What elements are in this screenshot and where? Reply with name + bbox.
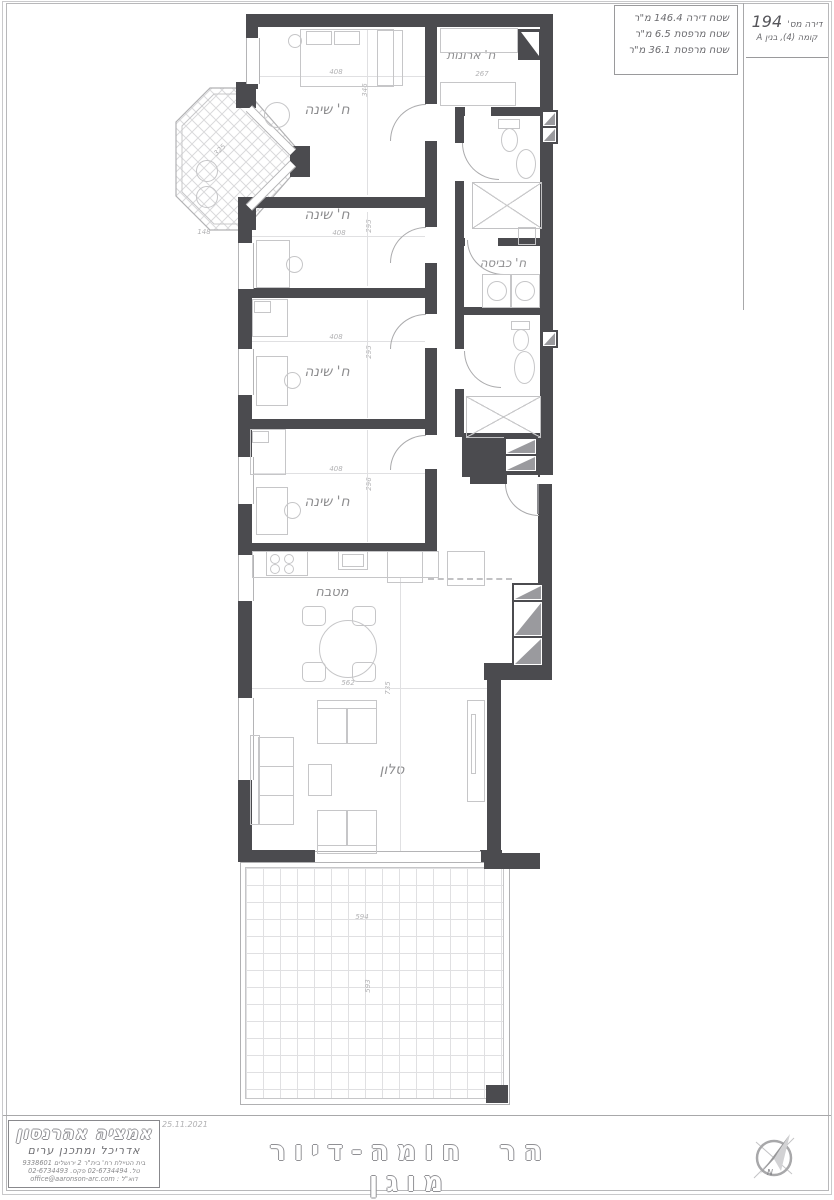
furniture-round [515, 281, 535, 301]
furniture [308, 764, 332, 796]
furniture [387, 551, 423, 583]
architect-email: דוא"ל : office@aaronson-arc.com [9, 1175, 159, 1183]
shaft-hatch [515, 639, 541, 664]
furniture [317, 708, 347, 744]
furniture [518, 227, 536, 245]
room-label-living: סלון [352, 762, 432, 778]
shaft-hatch [515, 603, 541, 635]
furniture-round [270, 564, 280, 574]
balcony-tiles [245, 867, 504, 1099]
furniture [467, 700, 485, 802]
furniture-round [196, 160, 218, 182]
furniture-round [284, 554, 294, 564]
shaft-hatch [507, 457, 535, 470]
furniture [347, 810, 377, 846]
north-compass-icon: N [748, 1128, 800, 1188]
dining-chair [302, 606, 326, 626]
architect-role: אדריכל ומתכנן ערים [9, 1144, 159, 1157]
furniture [252, 431, 269, 443]
wall-segment [455, 238, 464, 437]
door-swing-arc [390, 314, 426, 349]
door-opening [425, 435, 437, 469]
dim-bay-width: 148 [182, 228, 226, 236]
shower [472, 182, 542, 229]
door-opening [425, 104, 437, 141]
furniture [317, 700, 377, 709]
wall-segment [246, 14, 548, 27]
furniture-round [284, 502, 301, 519]
furniture-round [513, 329, 529, 351]
furniture [258, 737, 294, 767]
wall-segment [484, 853, 540, 869]
drawing-date: 25.11.2021 [162, 1120, 208, 1129]
furniture-round [516, 149, 536, 179]
door-opening [425, 227, 437, 263]
door-opening [507, 475, 538, 484]
furniture [377, 30, 403, 86]
dining-chair [302, 662, 326, 682]
door-swing-arc [390, 104, 426, 141]
window [238, 349, 254, 395]
dimension-guide-line [240, 688, 487, 689]
wall-segment [238, 419, 437, 429]
wall-segment [455, 307, 540, 315]
furniture [258, 795, 294, 825]
furniture-round [284, 372, 301, 389]
service-shaft [512, 636, 544, 667]
floor-plan-sheet: שטח דירה 146.4 מ"ר שטח מרפסת 6.5 מ"ר שטח… [0, 0, 834, 1200]
furniture [447, 551, 485, 586]
furniture [440, 28, 518, 53]
floor-plan: ח' שינה ח' שינה ח' שינה ח' שינה ח' ארונו… [0, 0, 834, 1200]
service-shaft [504, 454, 538, 473]
wall-segment [540, 14, 553, 475]
furniture-round [284, 564, 294, 574]
furniture [334, 31, 360, 45]
dimension-guide-line [367, 300, 368, 418]
furniture-round [501, 128, 518, 152]
furniture [306, 31, 332, 45]
wall-segment [486, 1085, 508, 1103]
architect-stamp: אמציה אהרנסון אדריכל ומתכנן ערים בית הטי… [8, 1120, 160, 1188]
dimension-guide-line [400, 577, 401, 851]
furniture [254, 301, 271, 313]
architect-name: אמציה אהרנסון [9, 1124, 159, 1144]
dim-closet-width: 267 [458, 70, 506, 78]
furniture-round [288, 34, 302, 48]
furniture [471, 714, 476, 774]
door-opening [455, 349, 464, 389]
wall-segment [487, 680, 501, 852]
wall-segment [238, 288, 437, 298]
furniture [317, 810, 347, 846]
door-opening [465, 107, 491, 116]
dimension-guide-line [252, 236, 425, 237]
furniture [250, 735, 260, 825]
dim-balcony-width: 594 [338, 913, 386, 921]
dining-chair [352, 606, 376, 626]
service-shaft [512, 600, 544, 638]
furniture [258, 766, 294, 796]
door-swing-arc [462, 143, 499, 180]
furniture [440, 82, 516, 106]
shaft-hatch [544, 333, 555, 345]
window [246, 38, 260, 84]
furniture [342, 554, 364, 567]
furniture-round [286, 256, 303, 273]
door-swing-arc [464, 351, 501, 388]
door-opening [425, 314, 437, 348]
wall-segment [238, 850, 315, 862]
door-swing-arc [390, 227, 426, 263]
shaft-hatch [544, 129, 555, 141]
dim-bedroom4-width: 408 [312, 465, 360, 473]
wall-segment [238, 197, 437, 208]
room-label-kitchen: מטבח [292, 585, 372, 600]
furniture [347, 708, 377, 744]
dim-balcony-depth: 593 [364, 966, 372, 1006]
wall-segment [470, 475, 507, 484]
furniture-round [487, 281, 507, 301]
wall-niche [541, 330, 558, 348]
shaft-hatch [544, 113, 555, 125]
furniture-round [270, 554, 280, 564]
dim-bedroom3-width: 408 [312, 333, 360, 341]
furniture-round [264, 102, 290, 128]
dimension-guide-line [367, 430, 368, 542]
furniture-round [514, 351, 535, 384]
furniture [256, 240, 290, 288]
window [238, 243, 254, 289]
wall-niche [541, 126, 558, 144]
architect-phone: טל. 02-6734494 פקס. 02-6734493 [9, 1167, 159, 1175]
dimension-guide-line [367, 212, 368, 286]
architect-address: בית הטיילת רח' בית"ר 2 ירושלים 9338601 [9, 1159, 159, 1167]
shower [466, 396, 541, 438]
furniture-round [196, 186, 218, 208]
furniture [317, 845, 377, 854]
shaft-hatch [515, 586, 541, 599]
door-swing-arc [505, 484, 539, 516]
dining-chair [352, 662, 376, 682]
door-swing-arc [390, 435, 426, 470]
shaft-hatch [507, 440, 535, 453]
wall-segment [236, 82, 256, 108]
footer-separator-line [3, 1115, 831, 1116]
project-title: הר חומה-דיור מוגן [230, 1136, 590, 1198]
compass-north-letter: N [767, 1168, 773, 1177]
